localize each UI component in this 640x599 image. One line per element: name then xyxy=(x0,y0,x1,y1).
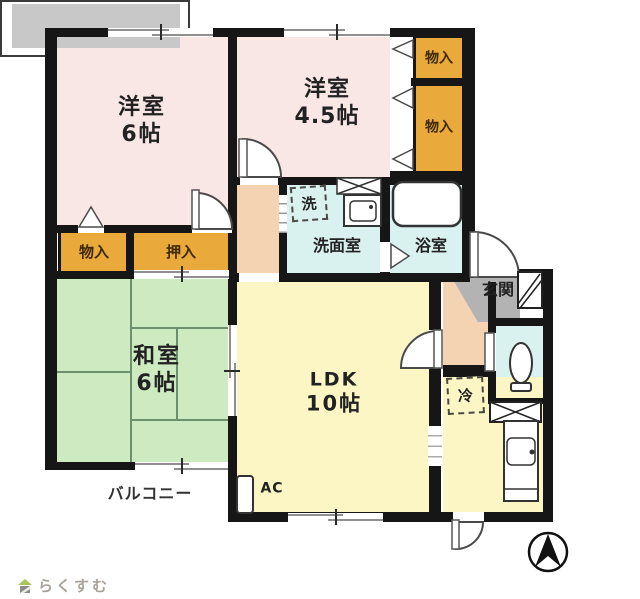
floor-plan: 洗 冷 xyxy=(0,0,640,599)
wall xyxy=(45,462,135,470)
door-leaf xyxy=(434,330,442,368)
room-bathroom xyxy=(390,185,462,273)
rakusumu-logo: らくすむ xyxy=(17,575,110,596)
wall xyxy=(488,398,543,404)
label-oshiire: 押入 xyxy=(166,243,196,261)
wall xyxy=(57,271,134,279)
house-icon xyxy=(17,578,33,594)
label-bathroom: 浴室 xyxy=(415,236,447,256)
room-size: 4.5帖 xyxy=(295,104,360,131)
label-japanese-room: 和室 6帖 xyxy=(133,344,181,398)
refrigerator-space: 冷 xyxy=(446,376,485,415)
open-passage xyxy=(428,426,442,466)
wall xyxy=(228,512,553,522)
door-opening xyxy=(453,512,484,522)
closet-door-strip xyxy=(390,37,415,171)
north-arrow-icon xyxy=(529,533,567,571)
label-ldk: LDK 10帖 xyxy=(306,369,362,418)
door-opening xyxy=(239,273,279,282)
wall xyxy=(429,282,441,330)
sliding-glass-door xyxy=(135,462,228,471)
wall xyxy=(429,466,441,512)
wall xyxy=(411,78,465,86)
fridge-label: 冷 xyxy=(457,385,473,407)
sliding-door xyxy=(228,325,237,416)
logo-text: らくすむ xyxy=(38,575,110,596)
label-balcony: バルコニー xyxy=(108,484,193,504)
room-name: 洋室 xyxy=(118,95,166,120)
wall xyxy=(462,28,475,278)
window xyxy=(284,28,390,37)
door-swing-entrance xyxy=(474,232,519,277)
wall xyxy=(488,318,543,326)
door-opening xyxy=(78,225,104,233)
label-entrance: 玄関 xyxy=(482,280,514,300)
washing-machine-space: 洗 xyxy=(290,185,328,222)
wall xyxy=(228,37,237,233)
wall xyxy=(429,368,441,426)
tatami-line xyxy=(130,419,228,421)
door-swing-back xyxy=(456,522,483,549)
accordion-door xyxy=(279,195,287,233)
door-opening xyxy=(240,177,278,185)
wall xyxy=(390,171,465,185)
label-western-room-4-5: 洋室 4.5帖 xyxy=(295,77,360,131)
fusuma-sliding-door xyxy=(134,270,229,279)
door-opening xyxy=(380,242,390,272)
window xyxy=(288,513,383,522)
door-opening xyxy=(488,333,496,371)
room-size: 6帖 xyxy=(118,122,166,149)
tatami-line xyxy=(57,371,130,373)
tatami-line xyxy=(130,277,132,462)
room-name: 洋室 xyxy=(304,77,350,102)
room-size: 10帖 xyxy=(306,392,362,418)
label-ac: AC xyxy=(260,480,283,497)
tatami-line xyxy=(130,327,228,329)
corridor xyxy=(237,185,280,273)
window xyxy=(108,28,213,37)
balcony-floor xyxy=(12,4,180,48)
label-closet: 物入 xyxy=(425,50,453,67)
label-washroom: 洗面室 xyxy=(313,236,361,256)
room-size: 6帖 xyxy=(133,371,181,398)
door-opening xyxy=(192,225,232,233)
door-leaf xyxy=(452,520,459,549)
wall xyxy=(543,269,553,522)
room-name: LDK xyxy=(310,369,359,391)
label-western-room-6: 洋室 6帖 xyxy=(118,95,166,149)
washer-label: 洗 xyxy=(301,193,317,215)
wall xyxy=(45,28,57,470)
room-name: 和室 xyxy=(133,344,181,369)
wall xyxy=(126,229,134,274)
label-closet: 物入 xyxy=(79,243,109,261)
label-closet: 物入 xyxy=(425,119,453,136)
